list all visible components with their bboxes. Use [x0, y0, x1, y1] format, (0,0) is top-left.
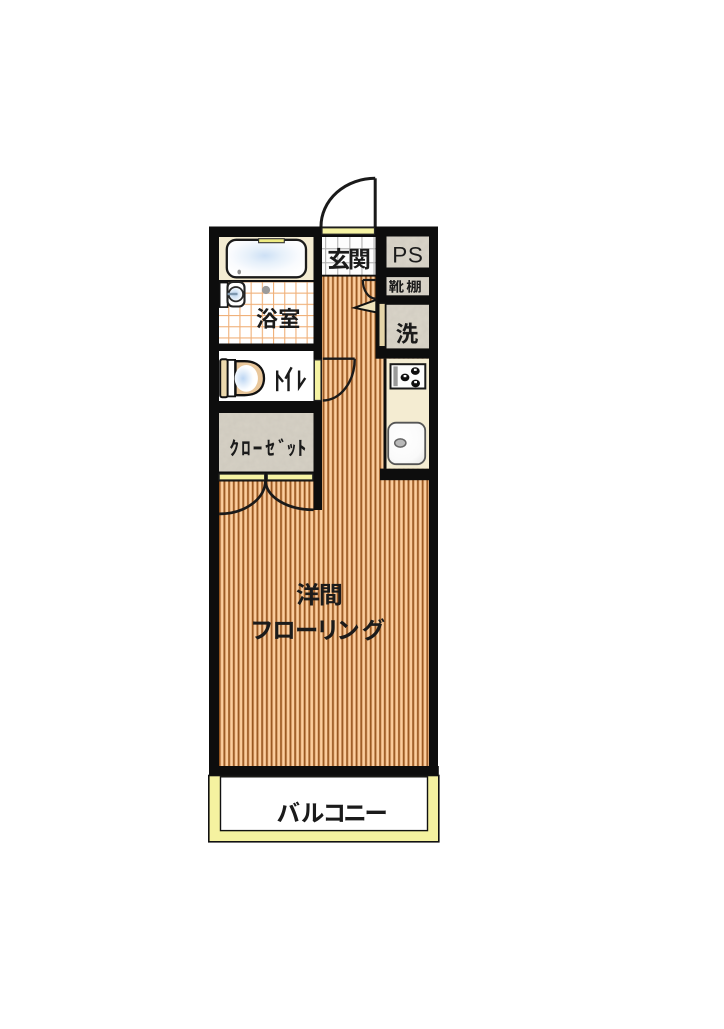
- svg-text:PS: PS: [392, 242, 423, 267]
